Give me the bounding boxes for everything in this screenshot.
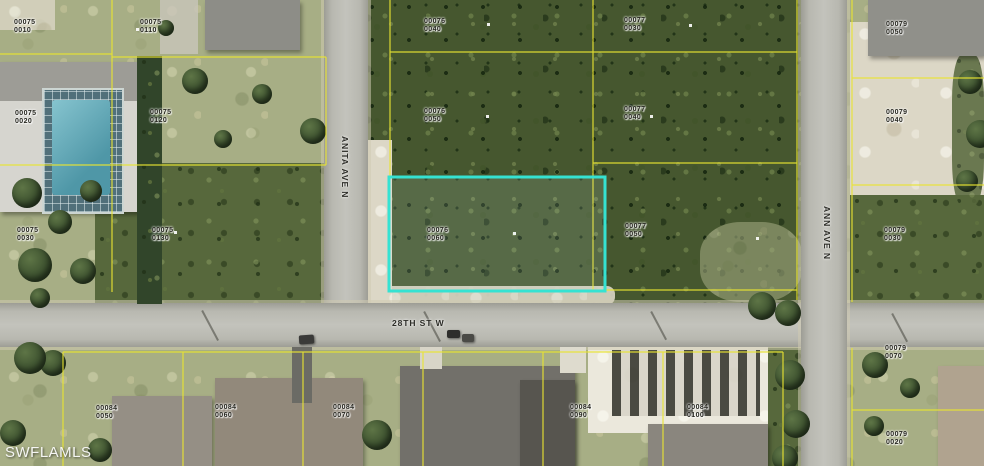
parcel-label-00084-0090: 00084 0090 [570, 404, 591, 420]
label-layer: 00075 001000075 011000076 004000077 0030… [0, 0, 984, 466]
parcel-label-00077-0050: 00077 0050 [625, 223, 646, 239]
parcel-label-00076-0040: 00076 0040 [424, 18, 445, 34]
street-label-28th-st-w: 28TH ST W [392, 318, 445, 328]
parcel-label-00075-0130: 00075 0130 [152, 227, 173, 243]
parcel-label-00075-0010: 00075 0010 [14, 19, 35, 35]
parcel-label-00075-0110: 00075 0110 [140, 19, 161, 35]
parcel-label-00076-0050: 00076 0050 [424, 108, 445, 124]
parcel-label-00079-0050: 00079 0050 [886, 21, 907, 37]
parcel-label-00075-0030: 00075 0030 [17, 227, 38, 243]
parcel-label-00075-0120: 00075 0120 [150, 109, 171, 125]
parcel-label-00084-0050: 00084 0050 [96, 405, 117, 421]
parcel-label-00084-0060: 00084 0060 [215, 404, 236, 420]
parcel-label-00079-0020: 00079 0020 [886, 431, 907, 447]
street-label-ann-ave-n: ANN AVE N [822, 206, 832, 260]
street-label-anita-ave-n: ANITA AVE N [340, 136, 350, 198]
parcel-label-00076-0060: 00076 0060 [427, 227, 448, 243]
parcel-label-00077-0040: 00077 0040 [624, 106, 645, 122]
parcel-label-00075-0020: 00075 0020 [15, 110, 36, 126]
parcel-label-00079-0040: 00079 0040 [886, 109, 907, 125]
parcel-label-00084-0100: 00084 0100 [687, 404, 708, 420]
parcel-label-00084-0070: 00084 0070 [333, 404, 354, 420]
parcel-label-00079-0030: 00079 0030 [884, 227, 905, 243]
watermark: SWFLAMLS [5, 444, 92, 461]
aerial-map: 00075 001000075 011000076 004000077 0030… [0, 0, 984, 466]
parcel-label-00079-0070: 00079 0070 [885, 345, 906, 361]
parcel-label-00077-0030: 00077 0030 [624, 17, 645, 33]
